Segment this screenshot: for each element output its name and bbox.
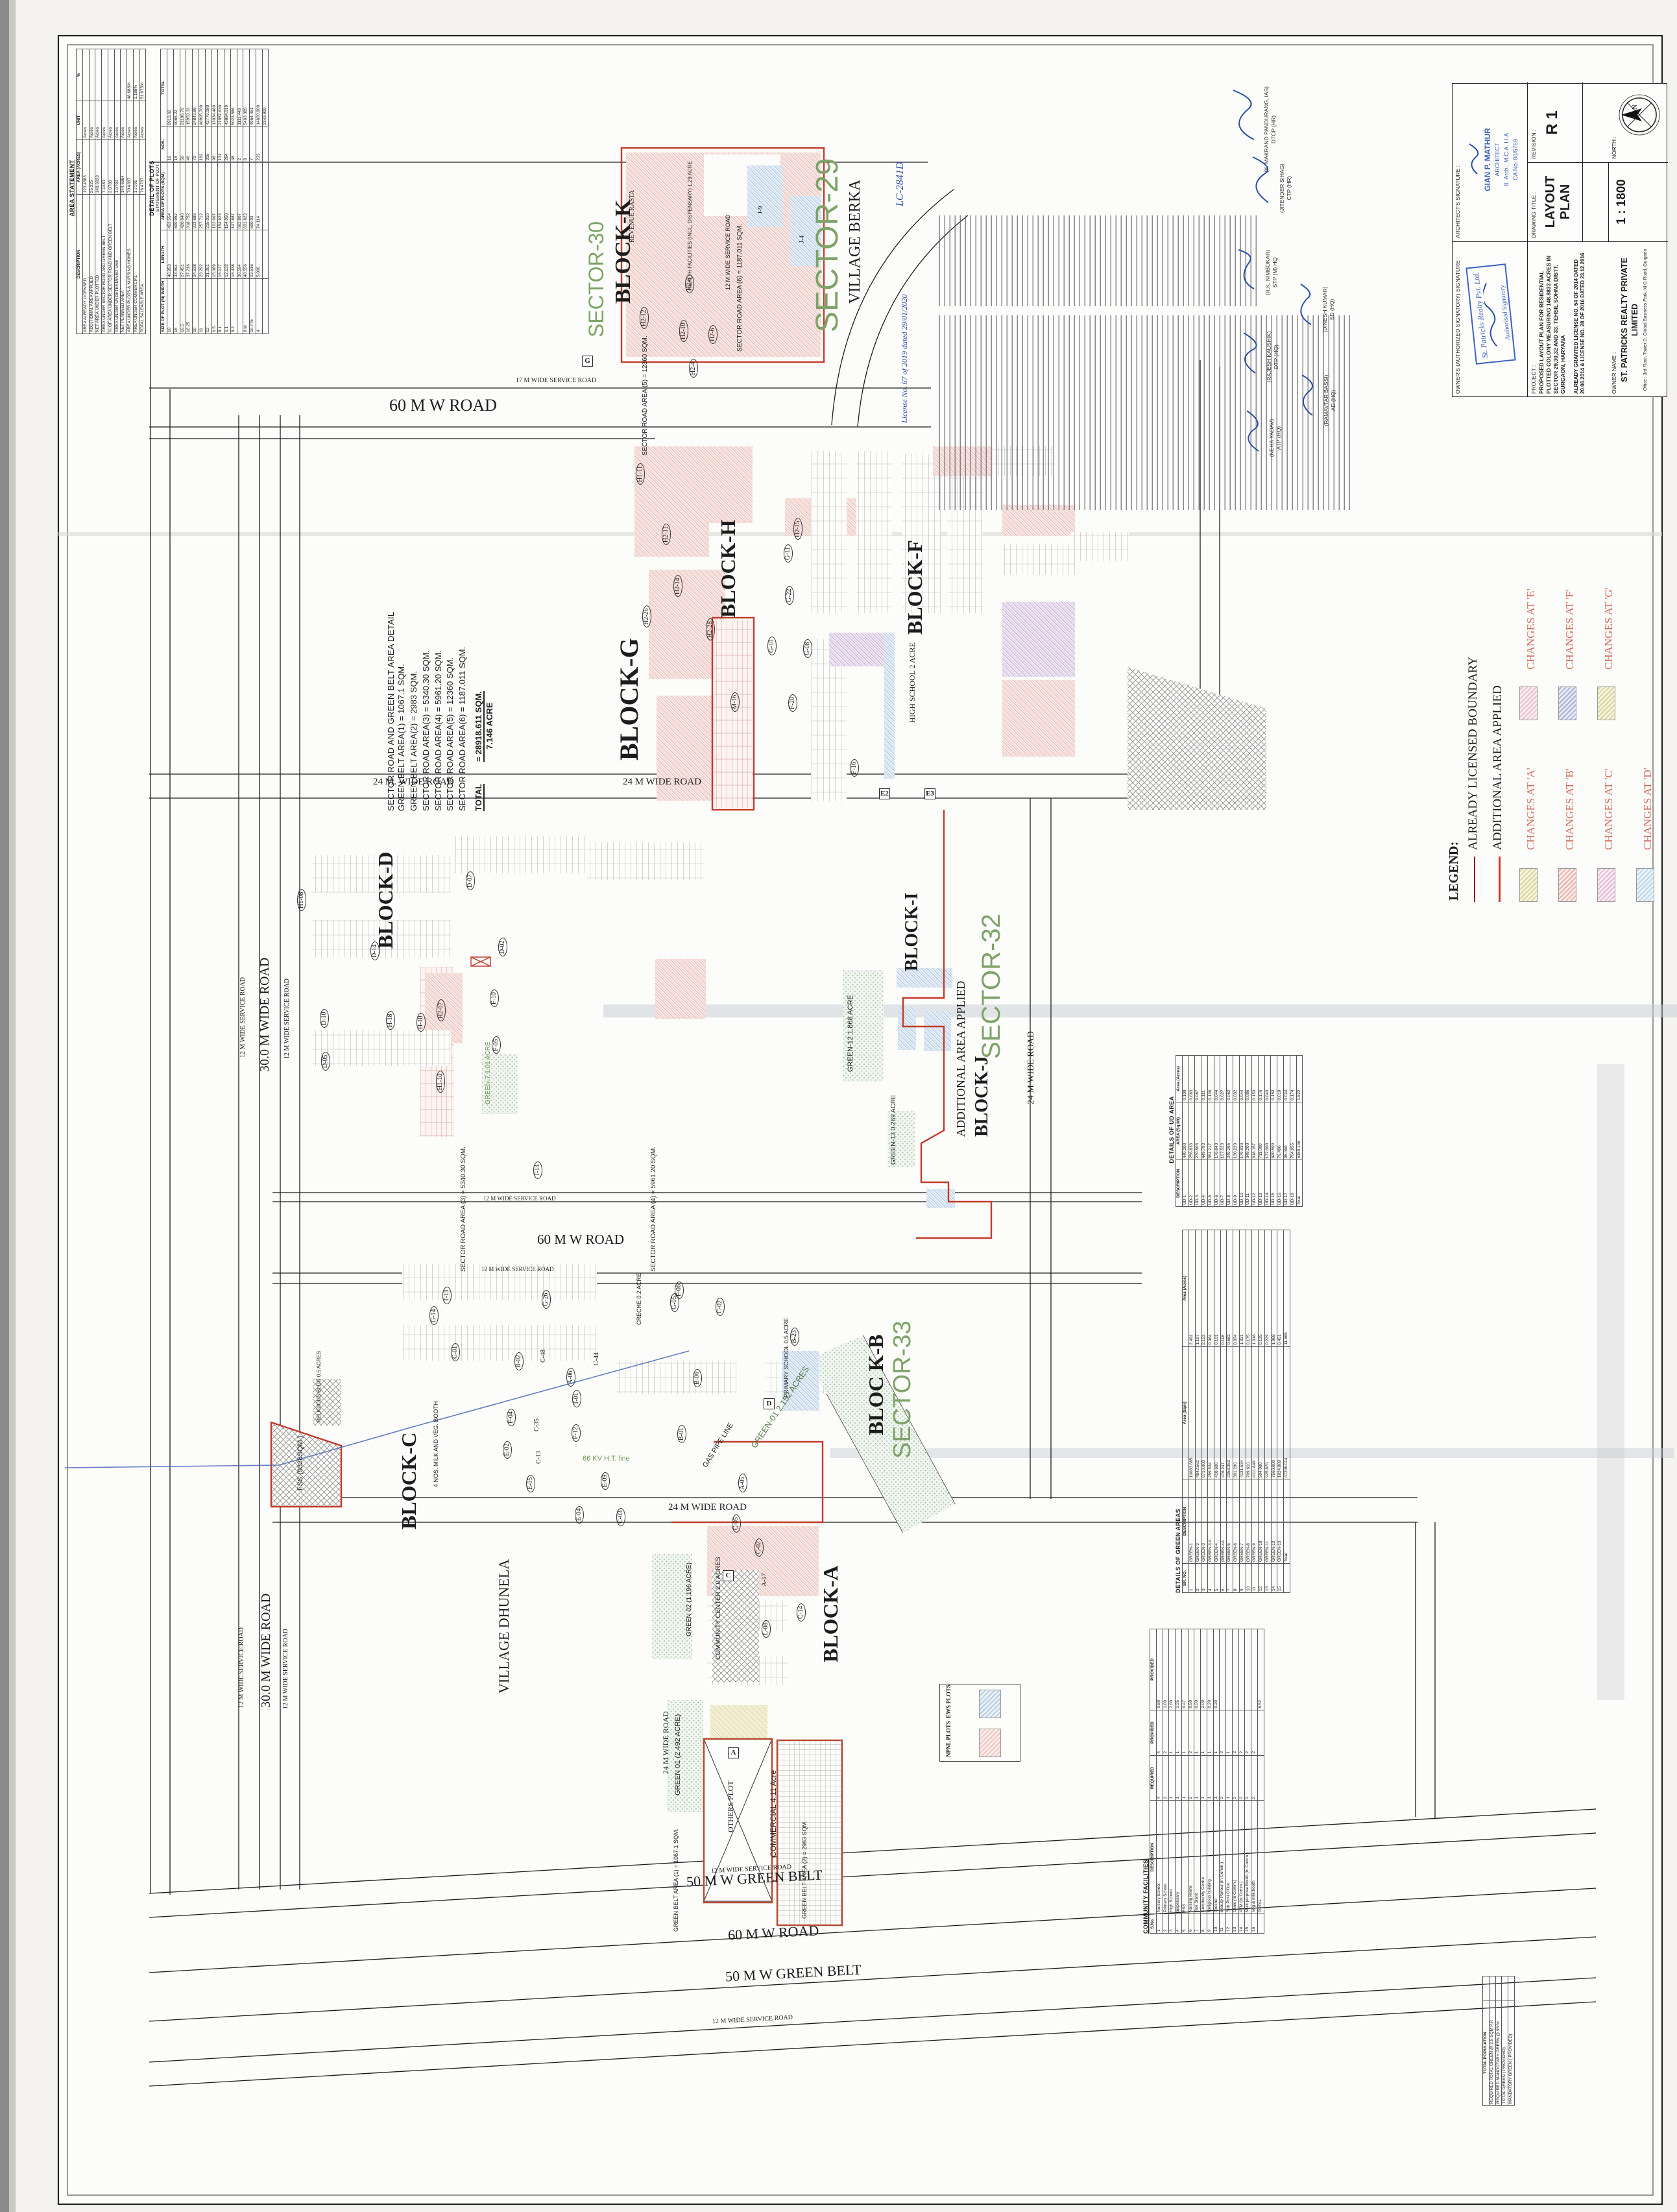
table-cell: TOTAL POPULATION (1483, 2000, 1490, 2106)
legend: LEGEND: ALREADY LICENSED BOUNDARY ADDITI… (1447, 584, 1667, 1064)
table-cell: 2353.353 (1227, 1346, 1233, 1479)
table-cell: UD-12 (1252, 1160, 1259, 1207)
plot-label: J-4 (799, 236, 806, 243)
table-cell: 13 (1232, 1914, 1238, 1934)
table-cell: 1 (1226, 1755, 1233, 1801)
community-facilities-block: COMMUNITY FACILITIES S.No.DESCRIPTIONREQ… (1142, 1625, 1434, 1934)
table-cell: 9 (1239, 1564, 1246, 1593)
village-label: VILLAGE DHUNELA (497, 1559, 511, 1694)
table-cell: 0.136 (1207, 1056, 1214, 1102)
table-cell: 256.833 (1188, 1102, 1195, 1160)
table-cell: 21106.70 (180, 49, 186, 127)
table-cell: 4842.562 (1195, 1346, 1201, 1479)
village-label: VILLAGE BERKA (847, 180, 863, 304)
divider (1608, 163, 1609, 242)
table-cell: 76.4787 (139, 140, 146, 195)
road-label: 30.0 M WIDE ROAD (259, 1594, 272, 1708)
table-cell: 15 (1245, 1914, 1251, 1934)
table-cell: AREA (Sq.Mt) (1176, 1102, 1183, 1160)
table-cell: 56 (180, 127, 186, 162)
table-cell: REQUIRED MANDOTARY GREEN @ 95 % (1495, 2000, 1502, 2106)
table-cell: 0.229 (1264, 1230, 1271, 1347)
signatory: (DINESH KUMAR) SD (HQ) (1321, 274, 1336, 345)
table-cell: 16.25 (186, 279, 193, 334)
green-area-label: GREEN-12 1.868 ACRE (847, 995, 854, 1072)
plot-label: D-05 (321, 1052, 330, 1071)
area-statement-table: DESCRIPTIONAREA (ACRES)UNIT%AREA ALREADY… (76, 49, 146, 334)
sector-label: SECTOR-33 (890, 1320, 915, 1459)
signatory-title: ATP (HQ) (1275, 426, 1282, 450)
table-cell: 10 (1213, 1914, 1220, 1934)
table-cell: 600.952 (173, 162, 180, 230)
table-cell: 8 M (243, 279, 250, 334)
table-cell: 16 (167, 127, 174, 162)
table-cell: 620.500 (1271, 1102, 1277, 1160)
block-label: BLOCK-F (904, 540, 925, 635)
community-facilities-table: S.No.DESCRIPTIONREQUIREDPROVIDEDPROVIDED… (1150, 1629, 1264, 1934)
table-cell: 0.20 (1207, 1629, 1213, 1710)
table-cell: UD-13 (1258, 1160, 1264, 1207)
table-cell: SR. NO. (1183, 1564, 1189, 1593)
scanned-layout-plan-sheet: SECTOR-30 BLOCK-K SECTOR-29 VILLAGE BERK… (0, 0, 1677, 2212)
table-cell: 1111.448 (237, 49, 243, 127)
road-label: 12 M WIDE SERVICE ROAD (283, 1629, 289, 1709)
plot-label: D-14 (370, 942, 380, 960)
table-cell: 48 (230, 127, 237, 162)
table-cell: 1.7191 (133, 140, 139, 195)
table-cell: 15 (173, 127, 180, 162)
architect-stamp: GIAN P. MATHUR ARCHITECT B. Arch., M.C.A… (1468, 111, 1519, 208)
table-cell: UD-18 (1290, 1160, 1296, 1207)
signatory-name: (R.K. NIMBOKAR) (1264, 250, 1271, 295)
table-cell: 4 (1156, 1755, 1163, 1801)
table-cell: Acres (102, 101, 108, 140)
table-cell: 0.109 (1182, 1056, 1188, 1102)
table-cell: 476.247 (1220, 1346, 1227, 1479)
table-cell: 79 (193, 127, 199, 162)
signatory-title: SD (HQ) (1329, 299, 1335, 321)
table-cell: 0.024 (1284, 1056, 1290, 1102)
grid-marker: C (723, 1570, 734, 1581)
additional-area-label: ADDITIONAL AREA APPLIED (1491, 685, 1505, 850)
plot-label: G-26 (542, 1290, 551, 1309)
table-cell: 1 (1176, 1755, 1182, 1801)
table-cell: TOTAL GREEN ( PROVIDED) (1502, 2000, 1508, 2106)
table-cell (237, 279, 243, 334)
plot-label: E-05 (526, 1475, 535, 1492)
table-cell: 1.522 (1296, 1056, 1303, 1102)
table-cell (1489, 1976, 1495, 2000)
owner-name-label: OWNER NAME : (1611, 352, 1617, 394)
plot-label: T-13 (442, 1287, 452, 1304)
table-cell: 6159.146 (1296, 1102, 1303, 1160)
table-cell: 8.52 (1258, 1629, 1264, 1710)
svg-text:N: N (1631, 104, 1639, 110)
table-cell: 13 (1264, 1564, 1271, 1593)
table-cell: Nursery School (1156, 1801, 1163, 1914)
plot-label: F-12 (572, 1424, 581, 1442)
table-cell (108, 49, 114, 101)
green-area-label: GREEN-13 0.269 ACRE (891, 1095, 897, 1165)
table-cell: 0.063 (1188, 1056, 1195, 1102)
sector-road-total-sqm: = 28918.611 SQM. (474, 691, 485, 762)
table-cell: 182 (199, 127, 206, 162)
table-cell: 130.220 (1233, 1102, 1239, 1160)
table-cell: LENGTH (161, 230, 167, 279)
table-cell: 631.823 (243, 162, 250, 230)
table-cell: 8 (1233, 1564, 1240, 1593)
changes-c-swatch (1597, 868, 1615, 902)
divider (1527, 82, 1528, 396)
table-cell: UD-14 (1264, 1160, 1271, 1207)
table-cell: 2 (1188, 1710, 1194, 1755)
signatory-name: (JITENDER SIHAG) (1279, 164, 1285, 213)
table-cell: 1 (1181, 1710, 1188, 1755)
sector-label: SECTOR-29 (812, 158, 843, 332)
table-cell: SIZE OF PLOT (M) WIDTH (161, 279, 167, 334)
table-cell: GREEN-4A (1220, 1479, 1227, 1564)
table-cell: AREA (ACRES) (77, 140, 83, 195)
plot-label: H1-10 (436, 1071, 445, 1093)
signatory: (RAMAVTAR BASSI) AD (HQ) (1323, 365, 1337, 436)
table-cell: 704.955 (1290, 1102, 1296, 1160)
detail-of-plots-table: SIZE OF PLOT (M) WIDTHLENGTHAREA OF PLOT… (160, 49, 269, 334)
plot-label: C-03 (616, 1508, 625, 1526)
table-cell: 154.923 (218, 162, 224, 230)
table-cell: 1.00 (1163, 1629, 1169, 1710)
plot-label: C-02 (754, 1538, 764, 1557)
table-cell: 2 (1163, 1755, 1169, 1801)
project-license-text: ALREADY GRANTED LICENSE NO. 54 OF 2014 D… (1573, 246, 1587, 394)
plot-label: D-10 (320, 1009, 329, 1028)
table-cell: 0.153 (1252, 1056, 1259, 1102)
table-cell: 107.523 (1220, 1102, 1227, 1160)
plot-label: H2-10 (679, 320, 688, 342)
table-cell: 5 (1214, 1564, 1220, 1593)
plot-label: T-01 (572, 1390, 581, 1407)
plot-label: D-07 (466, 871, 475, 890)
table-cell: UD-2 (1188, 1160, 1195, 1207)
signatory: (R.K. NIMBOKAR) STP (M) HQ (1264, 237, 1279, 308)
north-label: NORTH : (1611, 136, 1617, 159)
plot-label: H2-12 (640, 307, 649, 329)
signatory-title: STP (M) HQ (1272, 258, 1278, 288)
table-cell: 551.217 (1207, 1102, 1214, 1160)
table-cell: 4 (1156, 1710, 1163, 1755)
changes-g-swatch (1597, 687, 1615, 720)
block-label: BLOC K-B (865, 1334, 886, 1435)
plot-label: L-08 (762, 1620, 771, 1638)
table-cell: UD-11 (1246, 1160, 1252, 1207)
table-cell: 48.686% (127, 49, 134, 101)
plot-label: B-06 (693, 1369, 702, 1387)
table-cell: UD-7 (1220, 1160, 1227, 1207)
table-cell: 0.80 (1156, 1629, 1163, 1710)
plot-label: B-02 (514, 1352, 524, 1370)
ud-area-title: DETAILS OF UD AREA (1168, 1052, 1175, 1207)
table-cell: UD-9 (1233, 1160, 1239, 1207)
road-label: 12 M WIDE SERVICE ROAD (239, 1627, 245, 1708)
table-cell: 449.793 (1201, 1102, 1208, 1160)
table-cell: 1 (1207, 1710, 1213, 1755)
table-cell: TOTAL (1258, 1801, 1264, 1914)
plot-label: E-02 (503, 1441, 512, 1459)
table-cell: Acres (127, 101, 134, 140)
table-cell: DESCRIPTION (1183, 1479, 1189, 1564)
creche-label: CRECHE 0.2 ACRE (636, 1273, 642, 1325)
table-cell: 2 (237, 127, 243, 162)
signatory-title: CTP (HR) (1286, 176, 1292, 200)
table-cell: 76.490 (1277, 1102, 1284, 1160)
community-center-label: COMMUNITY CENTER 2.0 ACRES (716, 1557, 722, 1660)
table-cell: 1 (1226, 1710, 1233, 1755)
detail-of-plots-title: DETAIL OF PLOTS (149, 42, 155, 334)
sector-road-detail-line: GREEN BELT AREA(1) = 1067.1 SQM. (396, 542, 408, 811)
table-cell: 205 (205, 127, 211, 162)
table-cell: GREEN-2 (1195, 1479, 1201, 1564)
table-cell: 15.089 (211, 230, 218, 279)
signatory-title: DTP (HQ) (1273, 345, 1279, 369)
table-cell (262, 127, 269, 162)
table-cell: Taxi Stand (1194, 1801, 1201, 1914)
table-cell: 2.152 (1201, 1230, 1208, 1347)
table-cell: 7560.000 (1271, 1346, 1277, 1479)
table-cell: 2 (1188, 1755, 1194, 1801)
handwritten-lc-number: LC-2841D (895, 162, 906, 206)
table-cell: 14 (1238, 1914, 1245, 1934)
table-cell: 709.610 (1246, 1346, 1252, 1479)
table-cell: AREA OF PLOTS (SQM) (161, 162, 167, 230)
revision-value: R 1 (1543, 86, 1562, 159)
table-cell: 0.50 (1194, 1629, 1201, 1710)
table-cell: 12.132 (224, 230, 231, 279)
table-cell: 16 (1251, 1914, 1258, 1934)
signatory-name: (RAMAVTAR BASSI) (1323, 374, 1329, 426)
table-cell: 11 (1252, 1564, 1259, 1593)
table-cell: 284 (224, 127, 231, 162)
table-cell: 1 (1201, 1710, 1207, 1755)
table-cell: dispensary (1176, 1801, 1182, 1914)
table-cell: 13034.480 (211, 49, 218, 127)
changes-d-label: CHANGES AT 'D' (1641, 768, 1654, 850)
table-cell (1495, 1976, 1502, 2000)
table-cell: 318.752 (186, 162, 193, 230)
road-label: 12 M WIDE SERVICE ROAD (481, 1267, 554, 1272)
architect-name: GIAN P. MATHUR (1483, 128, 1492, 191)
changes-a-label: CHANGES AT 'A' (1525, 768, 1538, 850)
green-area-label: GREEN 01 (2.492 ACRE) (675, 1714, 682, 1795)
table-cell: 131 (218, 127, 224, 162)
table-cell: 1 (1201, 1755, 1207, 1801)
green-belt-label: GREEN BELT AREA (2) = 2983 SQM. (802, 1821, 808, 1919)
table-cell: GREEN-8 (1246, 1479, 1252, 1564)
table-cell: 10 (193, 279, 199, 334)
table-cell: 98 (211, 127, 218, 162)
green-summary-block: TOTAL POPULATIONREQUIRED TOTAL GREEN @ 2… (1482, 1973, 1573, 2106)
table-cell: Sub Post Office (1226, 1801, 1233, 1914)
plot-label: B-01 (677, 1425, 686, 1443)
religious-bldg-label: RELIGIOUS BLDG 0.5 ACRES (317, 1351, 322, 1422)
table-cell (1258, 1755, 1264, 1801)
table-cell: 0.111 (1201, 1056, 1208, 1102)
table-cell (102, 49, 108, 101)
divider (1582, 82, 1583, 242)
table-cell: 0.032 (1233, 1056, 1239, 1102)
green-belt-label: GREEN BELT AREA (1) = 1067.1 SQM. (673, 1829, 679, 1932)
table-cell: 410.600 (1214, 1346, 1220, 1479)
table-cell: 46 (186, 127, 193, 162)
table-cell: 257.712 (199, 162, 206, 230)
table-cell: 8 (1201, 1914, 1207, 1934)
plot-label: H2-4 (689, 359, 698, 378)
table-cell: 711.000 (1258, 1102, 1264, 1160)
table-cell: Acres (121, 101, 127, 140)
table-cell: 16 (173, 279, 180, 334)
table-cell: 23.292 (199, 230, 206, 279)
plot-label: H2-28 (706, 618, 715, 640)
table-cell: 12 (1226, 1914, 1233, 1934)
table-cell (89, 49, 95, 101)
table-cell: NOS. (161, 127, 167, 162)
table-cell: 0.027 (1220, 1056, 1227, 1102)
table-cell: 0.176 (1258, 1056, 1264, 1102)
table-cell: 47205.014 (1284, 1346, 1290, 1479)
table-cell: UD-17 (1284, 1160, 1290, 1207)
plot-label: H2-6 (708, 325, 718, 344)
table-cell: PROVIDED (1150, 1629, 1157, 1710)
owner-name: ST. PATRICKS REALTY PRIVATE LIMITED (1620, 246, 1640, 394)
table-cell: 0.175 (1246, 1230, 1252, 1347)
table-cell: UD-8 (1227, 1160, 1233, 1207)
table-cell: 348.200 (1246, 1102, 1252, 1160)
table-cell: 0.074 (1233, 1230, 1240, 1347)
table-cell: 0.47 (1181, 1629, 1188, 1710)
table-cell: 0.101 (1214, 1230, 1220, 1347)
table-cell: 0.50 (1188, 1629, 1194, 1710)
table-cell: 301.290 (1233, 1346, 1240, 1479)
table-cell: 1824.880 (1277, 1346, 1284, 1479)
block-label: BLOCK-D (375, 852, 396, 949)
table-cell: 15953.33 (186, 49, 193, 127)
community-facilities-title: COMMUNITY FACILITIES (1142, 1625, 1149, 1934)
owner-stamp: St. Patricks Realty Pvt. Ltd. Authorised… (1466, 263, 1515, 365)
table-cell (95, 49, 102, 101)
table-cell: UD-10 (1239, 1160, 1246, 1207)
table-cell: 5 (1181, 1914, 1188, 1934)
table-cell: 3 (1201, 1564, 1208, 1593)
plot-label: H2-07 (437, 999, 446, 1021)
table-cell: 2 (1163, 1710, 1169, 1755)
table-cell: Area (Sqm) (1183, 1346, 1189, 1479)
table-cell: 1 (1194, 1710, 1201, 1755)
sector-road-area-label: SECTOR ROAD AREA (6) = 1187.011 SQM. (737, 224, 743, 352)
table-cell (1502, 1976, 1508, 2000)
table-cell: GREEN-9 (1252, 1479, 1259, 1564)
signatory-name: (NEHA YADAV) (1268, 419, 1275, 457)
plot-label: A-17 (762, 1573, 768, 1586)
owner-stamp-authorised: Authorised Signatory (1499, 285, 1512, 341)
table-cell: GREEN-10 (1259, 1479, 1265, 1564)
table-cell: 2.00 (1201, 1629, 1207, 1710)
table-cell: 0.064 (1208, 1230, 1214, 1347)
table-cell: 74.114 (256, 162, 262, 230)
table-cell: 7 (1194, 1914, 1201, 1934)
sector-road-detail-line: SECTOR ROAD AREA(4) = 5961.20 SQM. (433, 542, 445, 811)
plot-label: D-02 (498, 938, 507, 956)
table-cell: Primary School (1163, 1801, 1169, 1914)
road-label: 12 M WIDE SERVICE ROAD (240, 977, 247, 1058)
table-cell: 43884.019 (224, 49, 231, 127)
project-label: PROJECT : (1530, 365, 1537, 394)
table-cell: 2 (1245, 1710, 1251, 1755)
road-label: 60 M W ROAD (537, 1233, 624, 1246)
table-cell: GREEN-4 (1214, 1479, 1220, 1564)
table-cell: 46905.700 (199, 49, 206, 127)
table-cell: 2 (1238, 1755, 1245, 1801)
table-cell: 12 (1259, 1564, 1265, 1593)
table-cell: 270.503 (1195, 1102, 1201, 1160)
plot-label: A-05 (738, 1474, 747, 1492)
table-cell: GREEN-3 A (1208, 1479, 1214, 1564)
table-cell: 107.887 (230, 162, 237, 230)
sector-road-detail-title: SECTOR ROAD AND GREEN BELT AREA DETAIL (386, 542, 396, 811)
signatory: (RAJESH KAUSHIK) DTP (HQ) (1266, 321, 1280, 393)
sector-road-detail-block: SECTOR ROAD AND GREEN BELT AREA DETAIL G… (386, 542, 513, 811)
additional-area-swatch (1499, 857, 1501, 902)
plot-label: C-01 (451, 1343, 460, 1361)
table-cell: 24.538 (193, 230, 199, 279)
table-cell: 2 (1251, 1755, 1258, 1801)
table-cell: 148.6833 (95, 140, 102, 195)
table-cell: 70.4387 (127, 140, 134, 195)
table-cell: 259.534 (1208, 1346, 1214, 1479)
table-cell: 5023.586 (230, 49, 237, 127)
table-cell: Total (1296, 1160, 1303, 1207)
table-cell: 122.007 (211, 162, 218, 230)
table-cell: 0.044 (1239, 1056, 1246, 1102)
table-cell: 0.582 (1227, 1230, 1233, 1347)
table-cell: MANDATORY GREEN ( PROVIDED) (1508, 2000, 1515, 2106)
road-label: 17 M WIDE SERVICE ROAD (516, 378, 596, 384)
grid-marker: E2 (879, 788, 890, 799)
table-cell: 11 (199, 279, 206, 334)
table-cell: 1 (1156, 1914, 1163, 1934)
table-cell: 95.490 (1284, 1102, 1290, 1160)
table-cell: PROVIDED (1150, 1710, 1157, 1755)
north-arrow-icon: N (1616, 91, 1663, 138)
table-cell: Acres (139, 101, 146, 140)
sector-road-area-label: SECTOR ROAD AREA (3) = 5340.30 SQM. (461, 1147, 467, 1272)
table-cell: GREEN-1 (1188, 1479, 1195, 1564)
table-cell: 16.5 (180, 279, 186, 334)
table-cell: 0.067 (1195, 1056, 1201, 1102)
table-cell: 10083.685 (1188, 1346, 1195, 1479)
plot-label: H2-11 (662, 524, 671, 545)
signatory: (K. MAKRAND PANDURANG, IAS) DTCP (HR) (1263, 82, 1277, 176)
table-cell: 1 (1207, 1755, 1213, 1801)
table-cell: 25.225 (89, 140, 95, 195)
table-cell (1220, 1629, 1226, 1710)
table-cell: 18.438 (230, 230, 237, 279)
table-cell (1483, 1976, 1490, 2000)
table-cell: 8710.000 (1201, 1346, 1208, 1479)
table-cell: GREEN-3 (1201, 1479, 1208, 1564)
notes-signature-squiggles (931, 81, 1382, 513)
green-area-label: GREEN-7 1.01 ACRE (485, 1041, 492, 1104)
signatory-title: AD (HQ) (1330, 390, 1336, 411)
table-cell: 21.001 (205, 230, 211, 279)
plot-label: G-05 (670, 1293, 679, 1312)
